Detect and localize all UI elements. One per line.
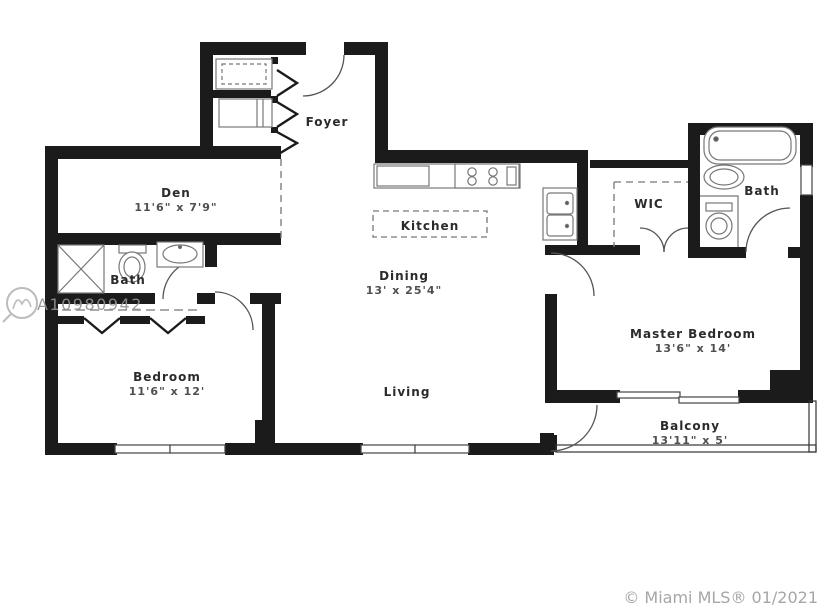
room-label-master-bath: Bath — [744, 184, 780, 198]
master-door-arc — [551, 253, 594, 296]
bathtub-inner — [709, 131, 791, 160]
tub-faucet — [714, 137, 718, 141]
burner — [468, 168, 476, 176]
fixtures — [58, 59, 796, 293]
burner — [489, 168, 497, 176]
mls-logo-tail — [3, 314, 11, 322]
room-label-living: Living — [384, 385, 431, 399]
sliding-door — [617, 392, 680, 398]
bedroom-closet-door — [84, 318, 120, 333]
living-window — [361, 445, 415, 453]
bedroom-closet-door — [150, 318, 186, 333]
sliding-door — [679, 397, 739, 403]
room-label-kitchen: Kitchen — [401, 219, 460, 233]
copyright-text: © Miami MLS® 01/2021 — [623, 588, 818, 607]
watermark-id: A10980942 — [37, 295, 143, 314]
room-label-bedroom: Bedroom — [133, 370, 201, 384]
faucet-dot — [565, 201, 568, 204]
bedroom-window — [170, 445, 225, 453]
room-label-den: Den — [161, 186, 191, 200]
foyer-closet-door — [277, 70, 297, 96]
wic-door-arc — [640, 228, 664, 252]
entry-door-arc — [303, 55, 344, 96]
living-window — [415, 445, 469, 453]
room-label-dining: Dining — [379, 269, 429, 283]
wic-door-arc — [664, 228, 688, 252]
appliance-inner — [222, 64, 266, 84]
balcony-door-arc — [551, 405, 597, 451]
bath-sink-inner — [710, 169, 738, 185]
room-dims-balcony: 13'11" x 5' — [652, 434, 729, 447]
room-dims-den: 11'6" x 7'9" — [134, 201, 217, 214]
faucet-dot — [565, 224, 568, 227]
room-dims-master-bedroom: 13'6" x 14' — [655, 342, 732, 355]
room-label-balcony: Balcony — [660, 419, 720, 433]
room-label-foyer: Foyer — [306, 115, 349, 129]
foyer-closet-door — [277, 102, 297, 127]
room-label-master-bedroom: Master Bedroom — [630, 327, 756, 341]
toilet-bowl — [711, 218, 727, 234]
bedroom-door-arc — [215, 292, 253, 330]
bedroom-window — [115, 445, 170, 453]
bath-window — [801, 165, 812, 195]
appliance — [219, 99, 272, 127]
burner — [468, 177, 476, 185]
faucet-dot — [179, 246, 182, 249]
room-label-wic: WIC — [634, 197, 664, 211]
floor-plan-image: Foyer Den 11'6" x 7'9" Kitchen Dining 13… — [0, 0, 828, 613]
mls-logo-mark — [13, 300, 31, 309]
stove-panel — [507, 167, 516, 185]
room-dims-bedroom: 11'6" x 12' — [129, 385, 206, 398]
toilet-tank — [706, 203, 732, 211]
room-label-bath: Bath — [110, 273, 146, 287]
master-bath-door-arc — [746, 208, 790, 252]
room-dims-dining: 13' x 25'4" — [366, 284, 443, 297]
floor-plan-page: Foyer Den 11'6" x 7'9" Kitchen Dining 13… — [0, 0, 828, 613]
fridge — [377, 166, 429, 186]
burner — [489, 177, 497, 185]
